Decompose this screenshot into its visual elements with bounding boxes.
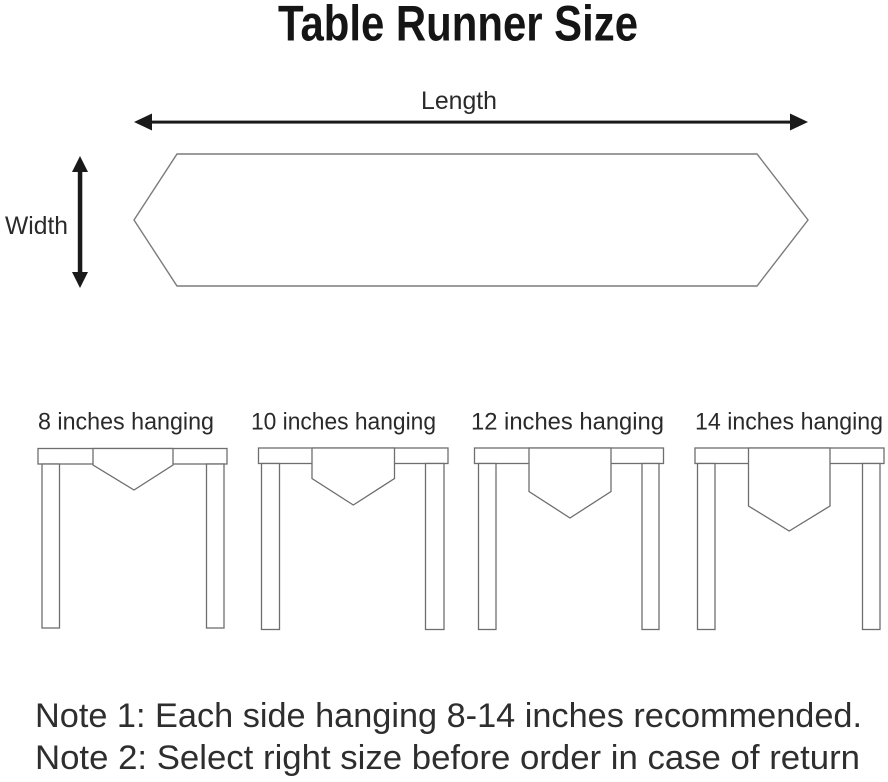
svg-text:Note 1: Each side hanging 8-14: Note 1: Each side hanging 8-14 inches re… (35, 697, 862, 735)
svg-text:Table Runner Size: Table Runner Size (278, 0, 638, 52)
svg-text:Width: Width (5, 212, 68, 240)
svg-text:Length: Length (421, 87, 497, 115)
svg-text:10 inches hanging: 10 inches hanging (251, 409, 436, 436)
svg-text:12 inches hanging: 12 inches hanging (471, 409, 664, 436)
svg-text:14 inches hanging: 14 inches hanging (695, 409, 883, 436)
svg-text:Note 2: Select right size befo: Note 2: Select right size before order i… (35, 739, 860, 777)
svg-text:8 inches hanging: 8 inches hanging (38, 409, 214, 436)
